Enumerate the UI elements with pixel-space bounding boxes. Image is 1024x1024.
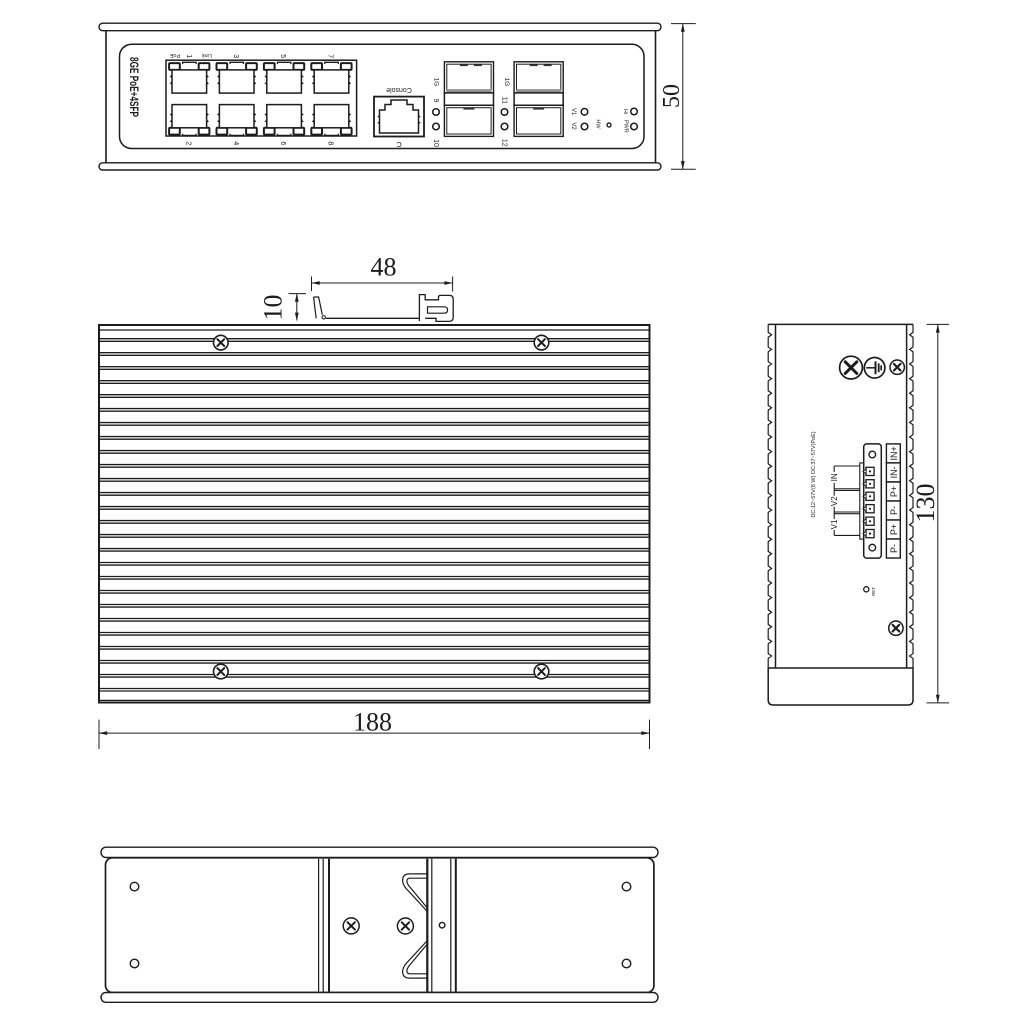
svg-text:V2: V2	[570, 122, 576, 130]
svg-text:1G: 1G	[503, 78, 510, 87]
svg-text:DC:12~57V(8 W) DC:37~57V(PoE): DC:12~57V(8 W) DC:37~57V(PoE)	[811, 431, 817, 517]
svg-text:8GE PoE+4SFP: 8GE PoE+4SFP	[127, 57, 141, 117]
svg-text:IN+: IN+	[889, 446, 899, 460]
svg-text:7: 7	[326, 54, 333, 58]
svg-text:12: 12	[500, 139, 507, 147]
svg-text:9: 9	[432, 98, 439, 102]
svg-text:P-: P-	[889, 506, 899, 515]
svg-text:3: 3	[232, 54, 239, 58]
svg-text:RET: RET	[871, 587, 876, 596]
svg-text:P+: P+	[889, 524, 899, 535]
svg-text:8: 8	[327, 141, 334, 145]
svg-text:Hi: Hi	[622, 109, 628, 114]
svg-text:6: 6	[279, 141, 286, 145]
svg-text:P+: P+	[889, 486, 899, 497]
svg-text:PWR: PWR	[622, 120, 628, 133]
svg-text:5: 5	[279, 54, 286, 58]
svg-text:Console: Console	[386, 86, 412, 93]
svg-text:10: 10	[259, 295, 288, 321]
svg-text:1G: 1G	[433, 78, 440, 87]
svg-text:P-: P-	[889, 544, 899, 553]
svg-text:Link: Link	[202, 52, 212, 58]
svg-text:2: 2	[184, 141, 191, 145]
svg-text:11: 11	[500, 97, 507, 104]
svg-text:V2: V2	[830, 496, 839, 506]
svg-text:4: 4	[232, 141, 239, 145]
svg-text:1: 1	[185, 54, 192, 58]
svg-text:V1: V1	[830, 519, 839, 529]
svg-text:PoE: PoE	[169, 52, 180, 58]
svg-text:130: 130	[911, 484, 940, 523]
svg-text:V1: V1	[570, 108, 576, 116]
svg-text:HW: HW	[595, 119, 601, 129]
svg-text:188: 188	[353, 708, 392, 737]
svg-text:50: 50	[659, 84, 685, 108]
svg-text:10: 10	[432, 139, 439, 147]
svg-text:IN: IN	[830, 473, 839, 481]
svg-text:C: C	[396, 140, 402, 149]
svg-text:IN-: IN-	[889, 466, 899, 478]
svg-text:48: 48	[371, 253, 397, 282]
